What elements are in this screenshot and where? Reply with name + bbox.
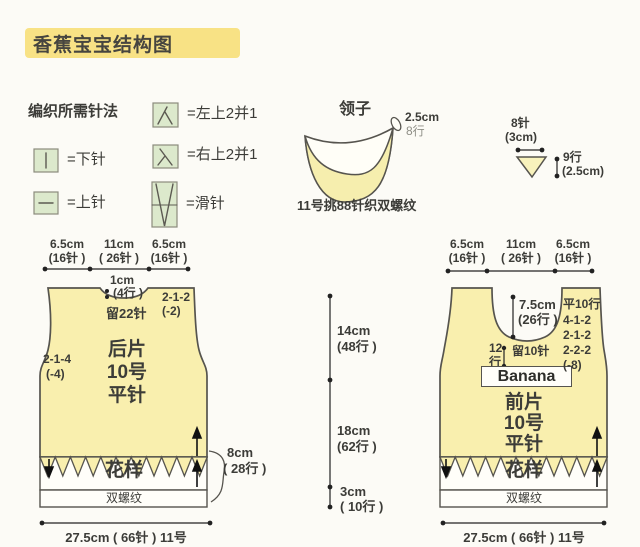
front-dim-left-st: (16针 ) bbox=[439, 252, 495, 265]
legend-label-k2tog-right: =右上2并1 bbox=[187, 147, 257, 164]
back-stitch-type: 平针 bbox=[87, 386, 167, 407]
back-armhole-shaping-1: 2-1-4 bbox=[43, 353, 71, 366]
collar-width-label: 2.5cm bbox=[405, 111, 439, 124]
front-shoulder-shaping-0: 平10行 bbox=[563, 298, 600, 311]
front-shoulder-shaping-3: 2-2-2 bbox=[563, 344, 591, 357]
page-title: 香蕉宝宝结构图 bbox=[25, 28, 240, 58]
collar-title: 领子 bbox=[339, 101, 371, 119]
banana-logo: Banana bbox=[481, 366, 572, 387]
front-needle-size: 10号 bbox=[484, 414, 564, 435]
back-dim-right-size: 6.5cm bbox=[141, 238, 197, 251]
gusset-height: (2.5cm) bbox=[562, 165, 604, 178]
front-shoulder-shaping-1: 4-1-2 bbox=[563, 314, 591, 327]
front-pattern-label: 花样 bbox=[483, 461, 565, 482]
gusset-triangle bbox=[516, 148, 560, 179]
center-dim-1-rows: (48行 ) bbox=[337, 340, 377, 354]
gusset-rows: 9行 bbox=[563, 151, 582, 164]
front-neck-rows: (26行 ) bbox=[518, 313, 558, 327]
gusset-stitches: 8针 bbox=[511, 117, 530, 130]
back-dim-mid-st: ( 26针 ) bbox=[91, 252, 147, 265]
legend-label-k2tog-left: =左上2并1 bbox=[187, 106, 257, 123]
back-dim-right-st: (16针 ) bbox=[141, 252, 197, 265]
front-stitch-type: 平针 bbox=[484, 435, 564, 456]
back-neck-rows: (4行 ) bbox=[113, 287, 143, 300]
front-neck-hold: 留10针 bbox=[512, 345, 549, 358]
front-piece-name: 前片 bbox=[484, 393, 564, 414]
back-shoulder-shaping-1: 2-1-2 bbox=[162, 291, 190, 304]
back-band-rows: ( 28行 ) bbox=[223, 462, 266, 476]
center-dim-1-size: 14cm bbox=[337, 324, 370, 338]
center-dim-2-size: 18cm bbox=[337, 424, 370, 438]
front-neck-size: 7.5cm bbox=[519, 298, 556, 312]
center-dim-2-rows: (62行 ) bbox=[337, 440, 377, 454]
legend-label-knit: =下针 bbox=[67, 152, 106, 169]
band-brace bbox=[209, 451, 225, 502]
front-bottom-dim: 27.5cm ( 66针 ) 11号 bbox=[443, 531, 605, 545]
front-dim-left-size: 6.5cm bbox=[439, 238, 495, 251]
collar-shape bbox=[305, 116, 403, 202]
center-dim-3-rows: ( 10行 ) bbox=[340, 500, 383, 514]
back-neck-hold: 留22针 bbox=[106, 307, 146, 321]
back-shoulder-shaping-2: (-2) bbox=[162, 305, 181, 318]
back-dim-left-st: (16针 ) bbox=[39, 252, 95, 265]
legend-header: 编织所需针法 bbox=[28, 104, 118, 121]
front-dim-mid-st: ( 26针 ) bbox=[493, 252, 549, 265]
back-dim-left-size: 6.5cm bbox=[39, 238, 95, 251]
back-rib-label: 双螺纹 bbox=[83, 492, 165, 505]
center-dim-3-size: 3cm bbox=[340, 485, 366, 499]
collar-rows-label: 8行 bbox=[406, 125, 425, 138]
back-pattern-label: 花样 bbox=[83, 461, 165, 482]
legend-label-purl: =上针 bbox=[67, 195, 106, 212]
back-armhole-shaping-2: (-4) bbox=[46, 368, 65, 381]
back-dim-mid-size: 11cm bbox=[91, 238, 147, 251]
front-rib-label: 双螺纹 bbox=[483, 492, 565, 505]
legend-symbol-boxes bbox=[34, 103, 178, 227]
front-dim-right-size: 6.5cm bbox=[545, 238, 601, 251]
legend-label-slip: =滑针 bbox=[186, 196, 225, 213]
front-placket-rows-1: 12 bbox=[489, 342, 502, 355]
back-bottom-dim: 27.5cm ( 66针 ) 11号 bbox=[41, 531, 211, 545]
back-piece-name: 后片 bbox=[87, 340, 167, 361]
center-dimension-line bbox=[328, 294, 333, 510]
back-needle-size: 10号 bbox=[87, 363, 167, 384]
collar-note: 11号挑88针织双螺纹 bbox=[297, 199, 416, 213]
front-dim-right-st: (16针 ) bbox=[545, 252, 601, 265]
k2tog-left-icon bbox=[153, 103, 178, 127]
front-dim-mid-size: 11cm bbox=[493, 238, 549, 251]
front-shoulder-shaping-2: 2-1-2 bbox=[563, 329, 591, 342]
front-shoulder-shaping-4: (-8) bbox=[563, 359, 582, 372]
gusset-width: (3cm) bbox=[505, 131, 537, 144]
back-band-size: 8cm bbox=[227, 446, 253, 460]
knitting-pattern-diagram: 香蕉宝宝结构图 编织所需针法 =左上2并1 =下针 =右上2并1 =上针 =滑针… bbox=[0, 0, 640, 547]
